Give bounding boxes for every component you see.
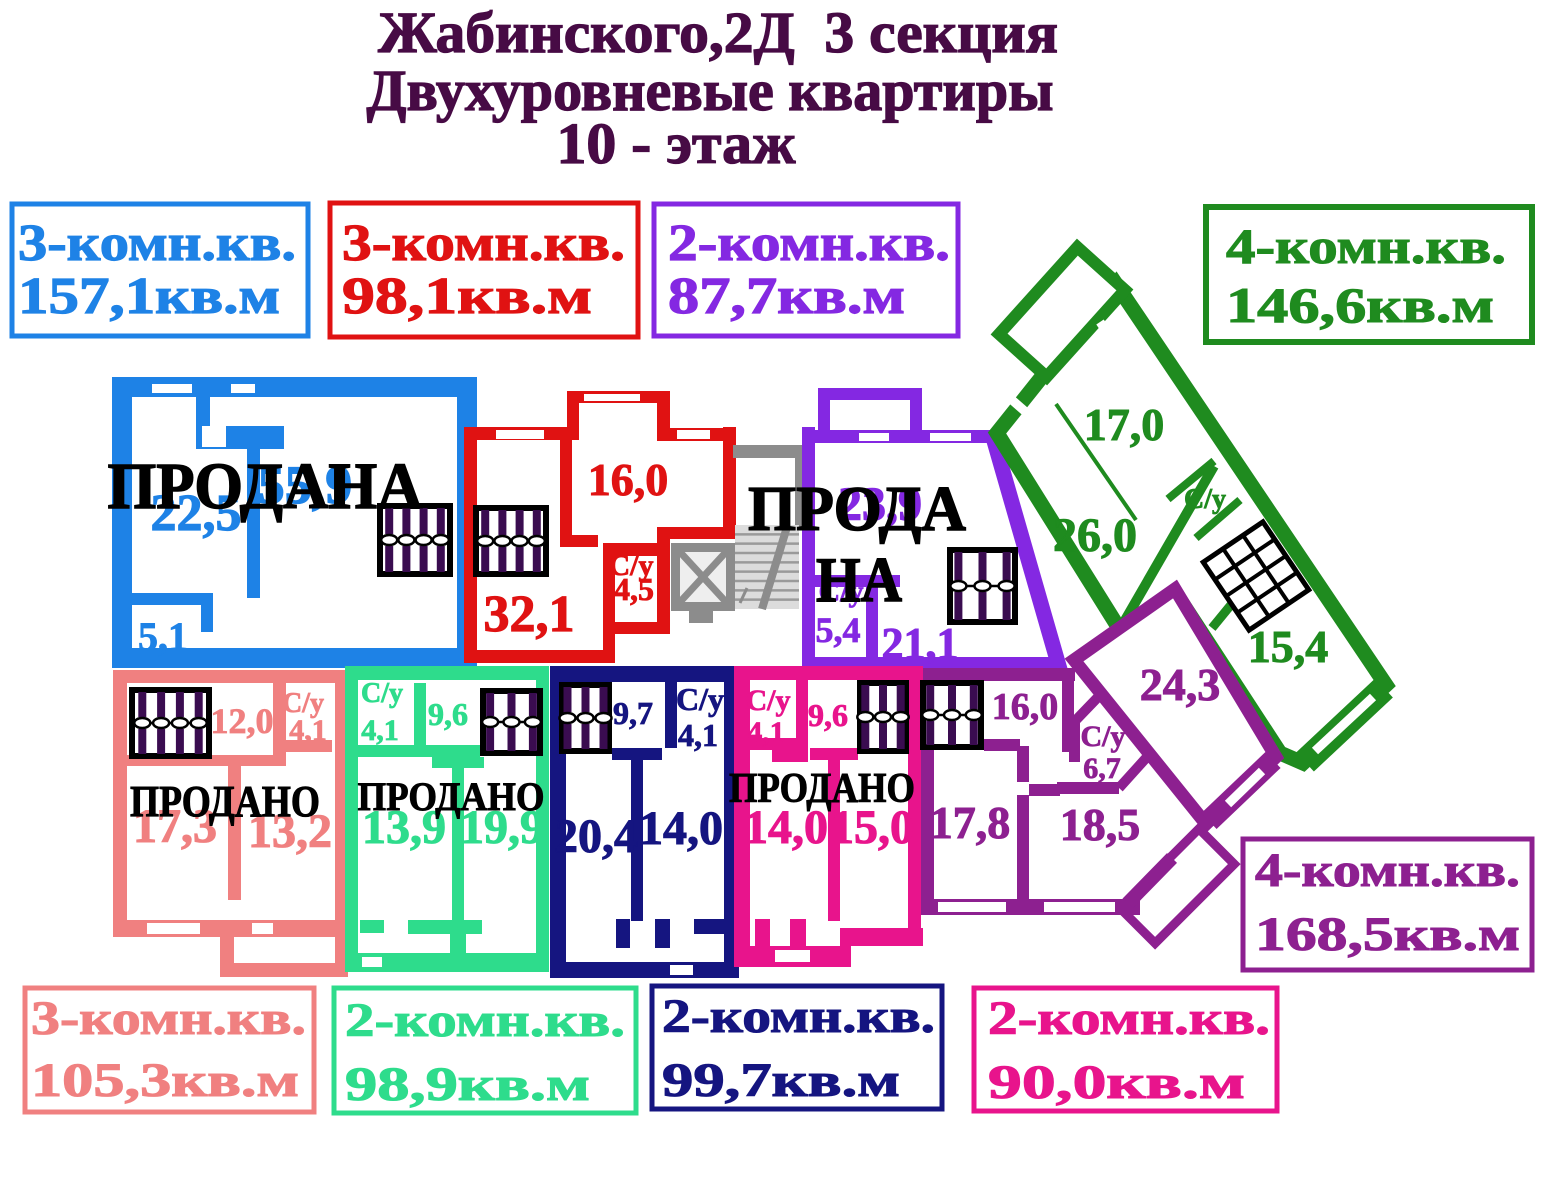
svg-text:157,1кв.м: 157,1кв.м: [18, 268, 280, 325]
svg-text:ПРОДАНО: ПРОДАНО: [130, 777, 320, 826]
svg-text:146,6кв.м: 146,6кв.м: [1226, 277, 1494, 333]
svg-text:С/у: С/у: [361, 678, 403, 709]
svg-text:20,4: 20,4: [554, 810, 638, 863]
svg-text:99,7кв.м: 99,7кв.м: [662, 1054, 900, 1107]
svg-text:4,1: 4,1: [289, 714, 327, 747]
svg-text:24,3: 24,3: [1140, 659, 1221, 710]
svg-text:17,8: 17,8: [930, 797, 1011, 848]
svg-text:4-комн.кв.: 4-комн.кв.: [1226, 218, 1506, 274]
svg-text:26,0: 26,0: [1053, 509, 1137, 562]
svg-text:5,1: 5,1: [138, 614, 188, 659]
svg-text:НА: НА: [816, 544, 902, 615]
svg-text:6,7: 6,7: [1083, 752, 1121, 785]
svg-text:2-комн.кв.: 2-комн.кв.: [345, 994, 625, 1047]
svg-text:3-комн.кв.: 3-комн.кв.: [31, 992, 306, 1045]
svg-text:ПРОДАНА: ПРОДАНА: [108, 450, 423, 523]
svg-text:5,4: 5,4: [816, 610, 861, 650]
svg-text:2-комн.кв.: 2-комн.кв.: [988, 992, 1270, 1045]
svg-text:С/у: С/у: [746, 684, 791, 717]
svg-text:16,0: 16,0: [588, 454, 669, 505]
svg-text:18,5: 18,5: [1060, 799, 1141, 850]
svg-text:15,4: 15,4: [1248, 621, 1329, 672]
svg-text:16,0: 16,0: [992, 686, 1059, 728]
svg-text:32,1: 32,1: [484, 586, 575, 643]
svg-text:ПРОДА: ПРОДА: [748, 473, 966, 544]
svg-text:12,0: 12,0: [211, 701, 274, 741]
svg-text:ПРОДАНО: ПРОДАНО: [729, 766, 915, 812]
svg-text:4,1: 4,1: [678, 717, 718, 753]
svg-text:98,1кв.м: 98,1кв.м: [342, 268, 592, 325]
svg-text:98,9кв.м: 98,9кв.м: [345, 1058, 590, 1111]
svg-text:3-комн.кв.: 3-комн.кв.: [18, 215, 296, 272]
svg-text:Жабинского,2Д 3 секция: Жабинского,2Д 3 секция: [378, 0, 1058, 65]
svg-text:С/у: С/у: [1184, 484, 1226, 515]
svg-text:4,5: 4,5: [614, 571, 654, 607]
svg-text:21,1: 21,1: [882, 619, 959, 668]
svg-text:10 - этаж: 10 - этаж: [557, 111, 796, 176]
svg-text:2-комн.кв.: 2-комн.кв.: [662, 990, 935, 1043]
svg-text:С/у: С/у: [676, 681, 724, 717]
svg-text:9,7: 9,7: [613, 695, 653, 731]
svg-text:87,7кв.м: 87,7кв.м: [668, 268, 905, 325]
svg-text:С/у: С/у: [1081, 720, 1126, 753]
svg-text:90,0кв.м: 90,0кв.м: [988, 1056, 1245, 1109]
svg-text:168,5кв.м: 168,5кв.м: [1255, 908, 1520, 961]
svg-text:4-комн.кв.: 4-комн.кв.: [1255, 844, 1520, 897]
svg-text:4,1: 4,1: [747, 716, 785, 749]
svg-text:4,1: 4,1: [361, 714, 399, 747]
svg-text:17,0: 17,0: [1084, 399, 1165, 450]
svg-text:9,6: 9,6: [428, 696, 468, 732]
svg-text:3-комн.кв.: 3-комн.кв.: [342, 215, 625, 272]
svg-text:14,0: 14,0: [639, 802, 723, 855]
svg-text:ПРОДАНО: ПРОДАНО: [358, 774, 545, 819]
svg-text:2-комн.кв.: 2-комн.кв.: [668, 215, 950, 272]
svg-text:9,6: 9,6: [808, 697, 848, 733]
svg-text:105,3кв.м: 105,3кв.м: [31, 1054, 299, 1107]
